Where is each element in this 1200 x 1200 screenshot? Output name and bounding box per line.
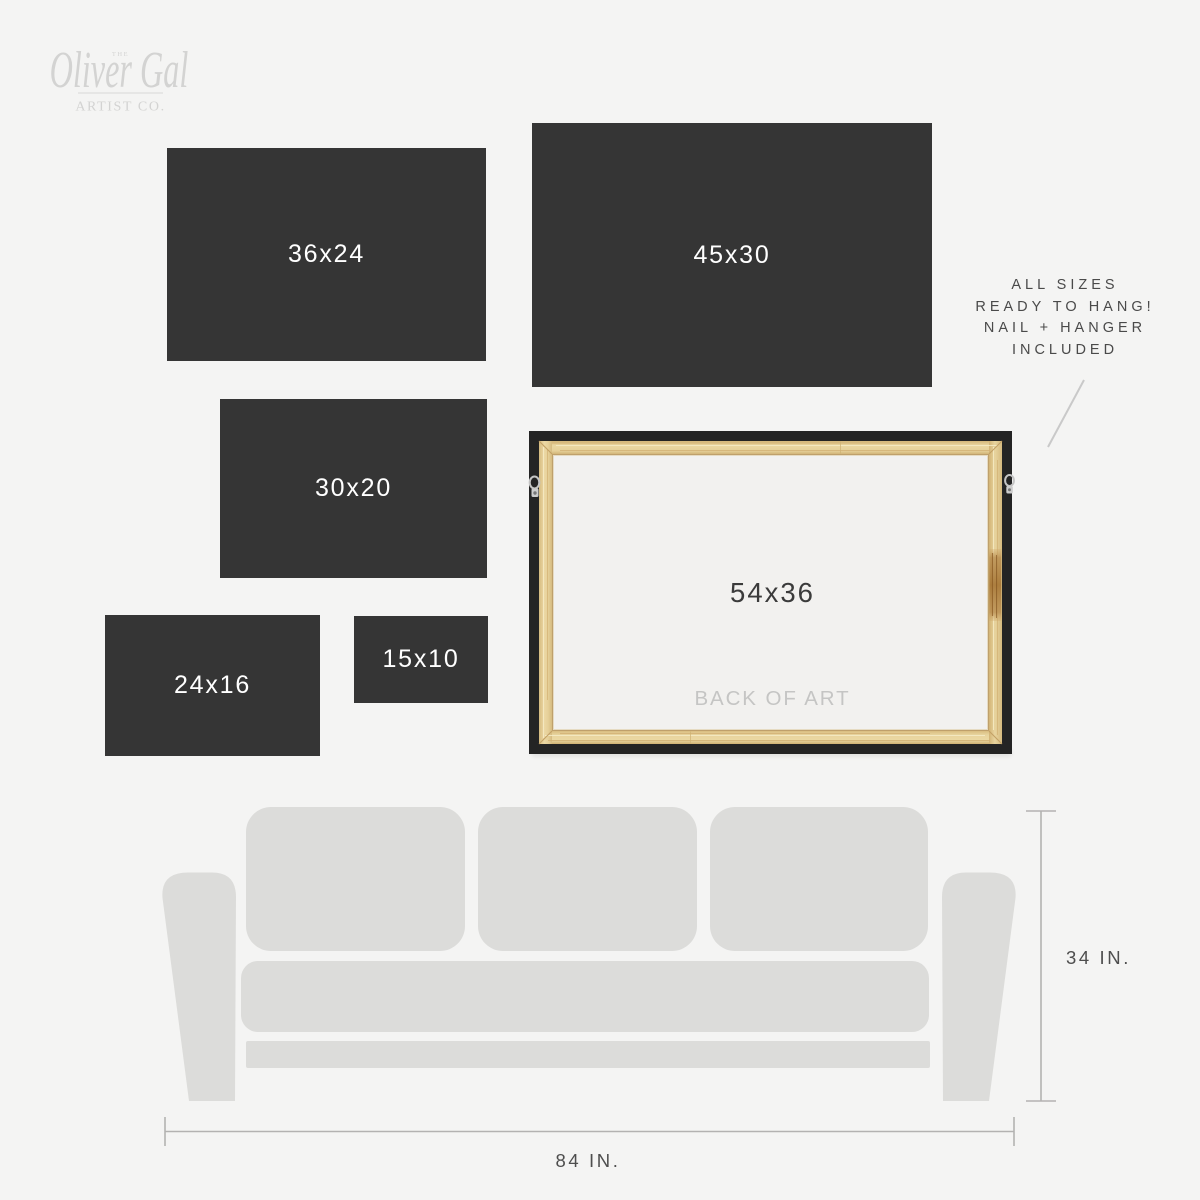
- svg-text:Oliver Gal: Oliver Gal: [50, 41, 189, 99]
- svg-text:ARTIST CO.: ARTIST CO.: [75, 100, 165, 115]
